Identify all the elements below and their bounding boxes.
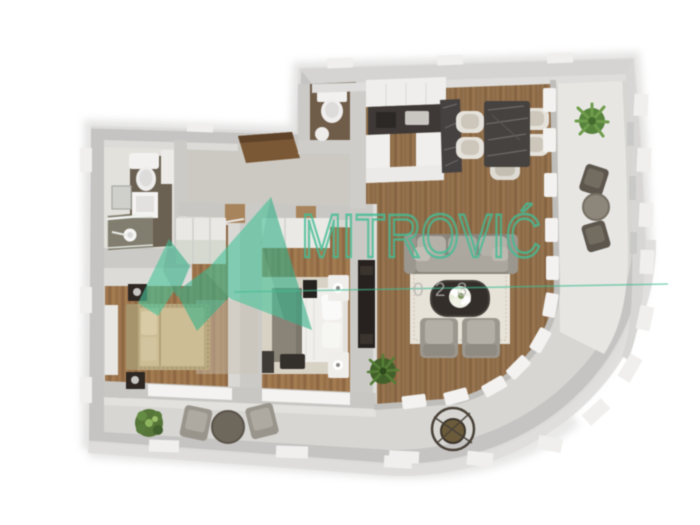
svg-text:0 2 3: 0 2 3 (413, 280, 470, 301)
svg-text:MITROVIĆ: MITROVIĆ (301, 202, 541, 270)
